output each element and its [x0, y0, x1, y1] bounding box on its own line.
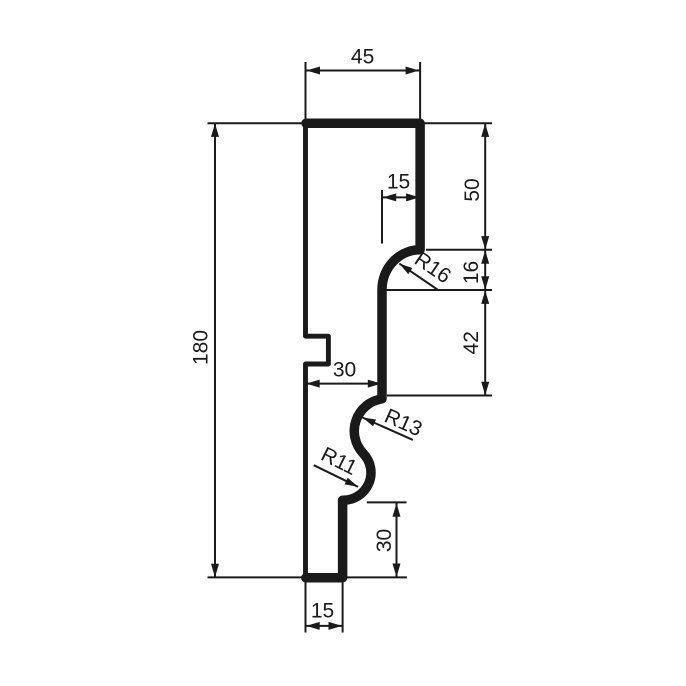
svg-text:45: 45: [351, 46, 374, 69]
svg-text:15: 15: [311, 600, 334, 623]
svg-text:16: 16: [460, 261, 483, 284]
svg-text:180: 180: [189, 330, 212, 365]
svg-text:15: 15: [387, 171, 410, 194]
svg-text:42: 42: [460, 331, 483, 354]
svg-text:50: 50: [461, 178, 484, 201]
svg-text:30: 30: [333, 358, 356, 381]
svg-text:30: 30: [373, 529, 396, 552]
